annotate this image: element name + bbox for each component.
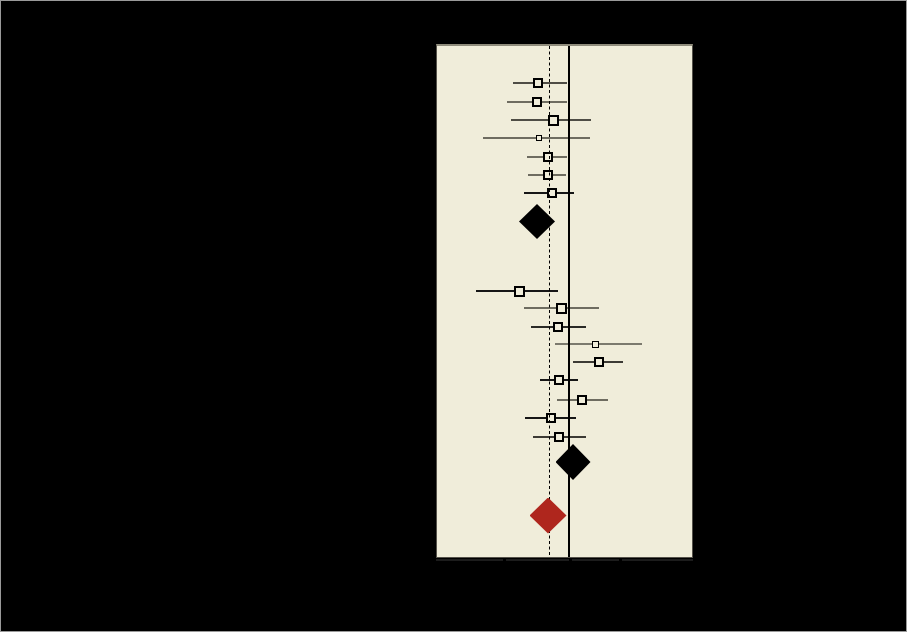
study-square [554,432,564,442]
figure-frame [0,0,907,632]
x-axis-line-segment [622,559,694,561]
study-square [553,322,563,332]
study-square [546,413,556,423]
study-square [556,303,567,314]
pooled-estimate-line [549,46,550,557]
study-square [594,357,604,367]
x-axis-line-segment [572,559,619,561]
study-square [533,78,543,88]
no-effect-line [568,46,570,557]
plot-area [436,44,693,558]
x-axis-line-segment [436,559,503,561]
x-axis-line-segment [506,559,569,561]
study-square [532,97,542,107]
study-square [592,341,599,348]
study-square [536,135,542,141]
study-square [577,395,587,405]
study-square [554,375,564,385]
study-square [514,286,525,297]
